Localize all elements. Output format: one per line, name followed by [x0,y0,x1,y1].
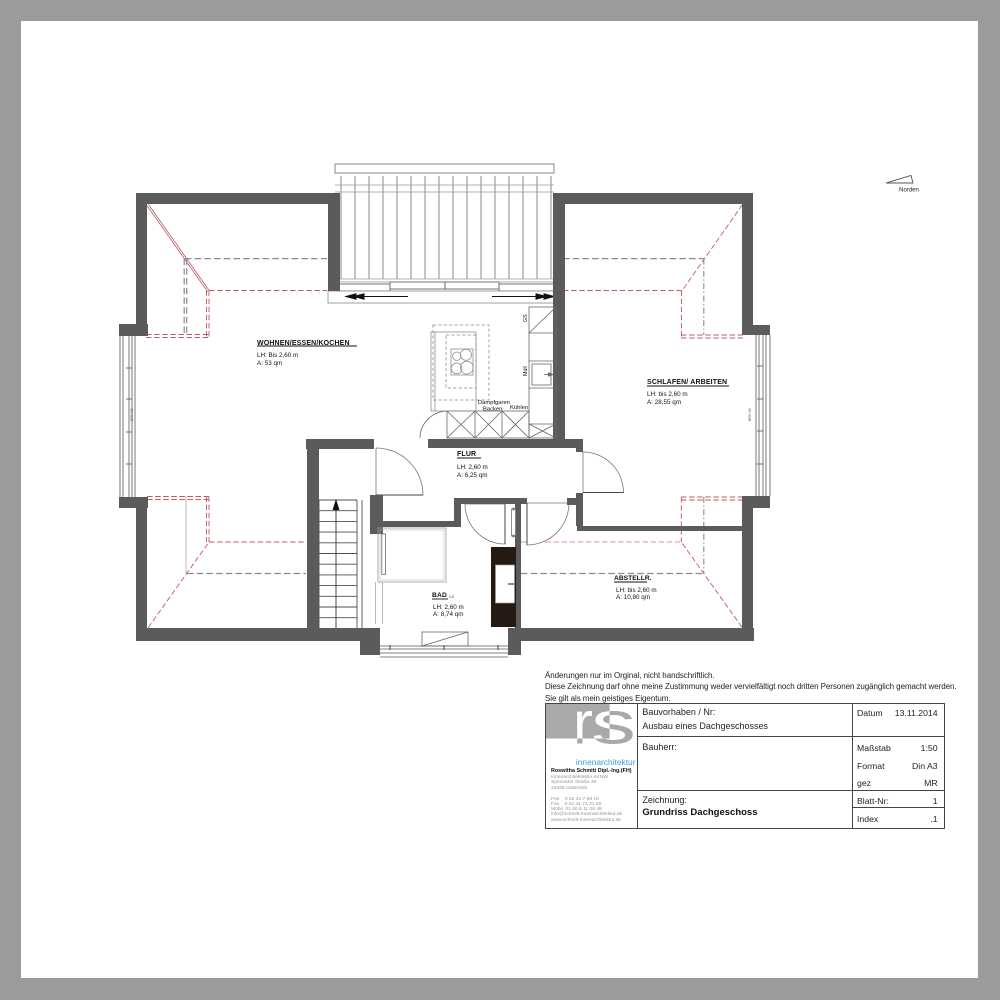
svg-text:LH: bis 2,60 m: LH: bis 2,60 m [616,587,657,594]
svg-text:Dampfgaren: Dampfgaren [478,400,510,406]
svg-text:BAD: BAD [432,592,447,599]
svg-text:Norden: Norden [899,188,919,194]
svg-text:ABSTELLR.: ABSTELLR. [614,575,652,582]
svg-text:Kühlen: Kühlen [510,405,528,411]
svg-text:Müll: Müll [523,366,529,376]
svg-text:LH: 2,60 m: LH: 2,60 m [433,604,464,611]
svg-text:A: 6,25 qm: A: 6,25 qm [457,472,487,479]
svg-text:LH: 2,60 m: LH: 2,60 m [457,464,488,471]
svg-text:A: 8,74 qm: A: 8,74 qm [433,611,463,618]
svg-text:A: 28,55 qm: A: 28,55 qm [647,399,681,406]
svg-text:BRH 50: BRH 50 [748,408,752,421]
svg-text:LH: bis 2,60 m: LH: bis 2,60 m [647,391,688,398]
svg-text:A: 53 qm: A: 53 qm [257,360,282,367]
svg-text:SCHLAFEN/ ARBEITEN: SCHLAFEN/ ARBEITEN [647,379,727,386]
svg-text:LH: Bis 2,60 m: LH: Bis 2,60 m [257,352,298,359]
svg-text:GS: GS [523,314,529,322]
svg-text:Backen: Backen [483,407,502,413]
svg-text:BRH 36: BRH 36 [130,408,134,421]
svg-text:A: 10,80 qm: A: 10,80 qm [616,594,650,601]
svg-text:1.0: 1.0 [449,595,454,599]
svg-text:FLUR: FLUR [457,451,476,458]
